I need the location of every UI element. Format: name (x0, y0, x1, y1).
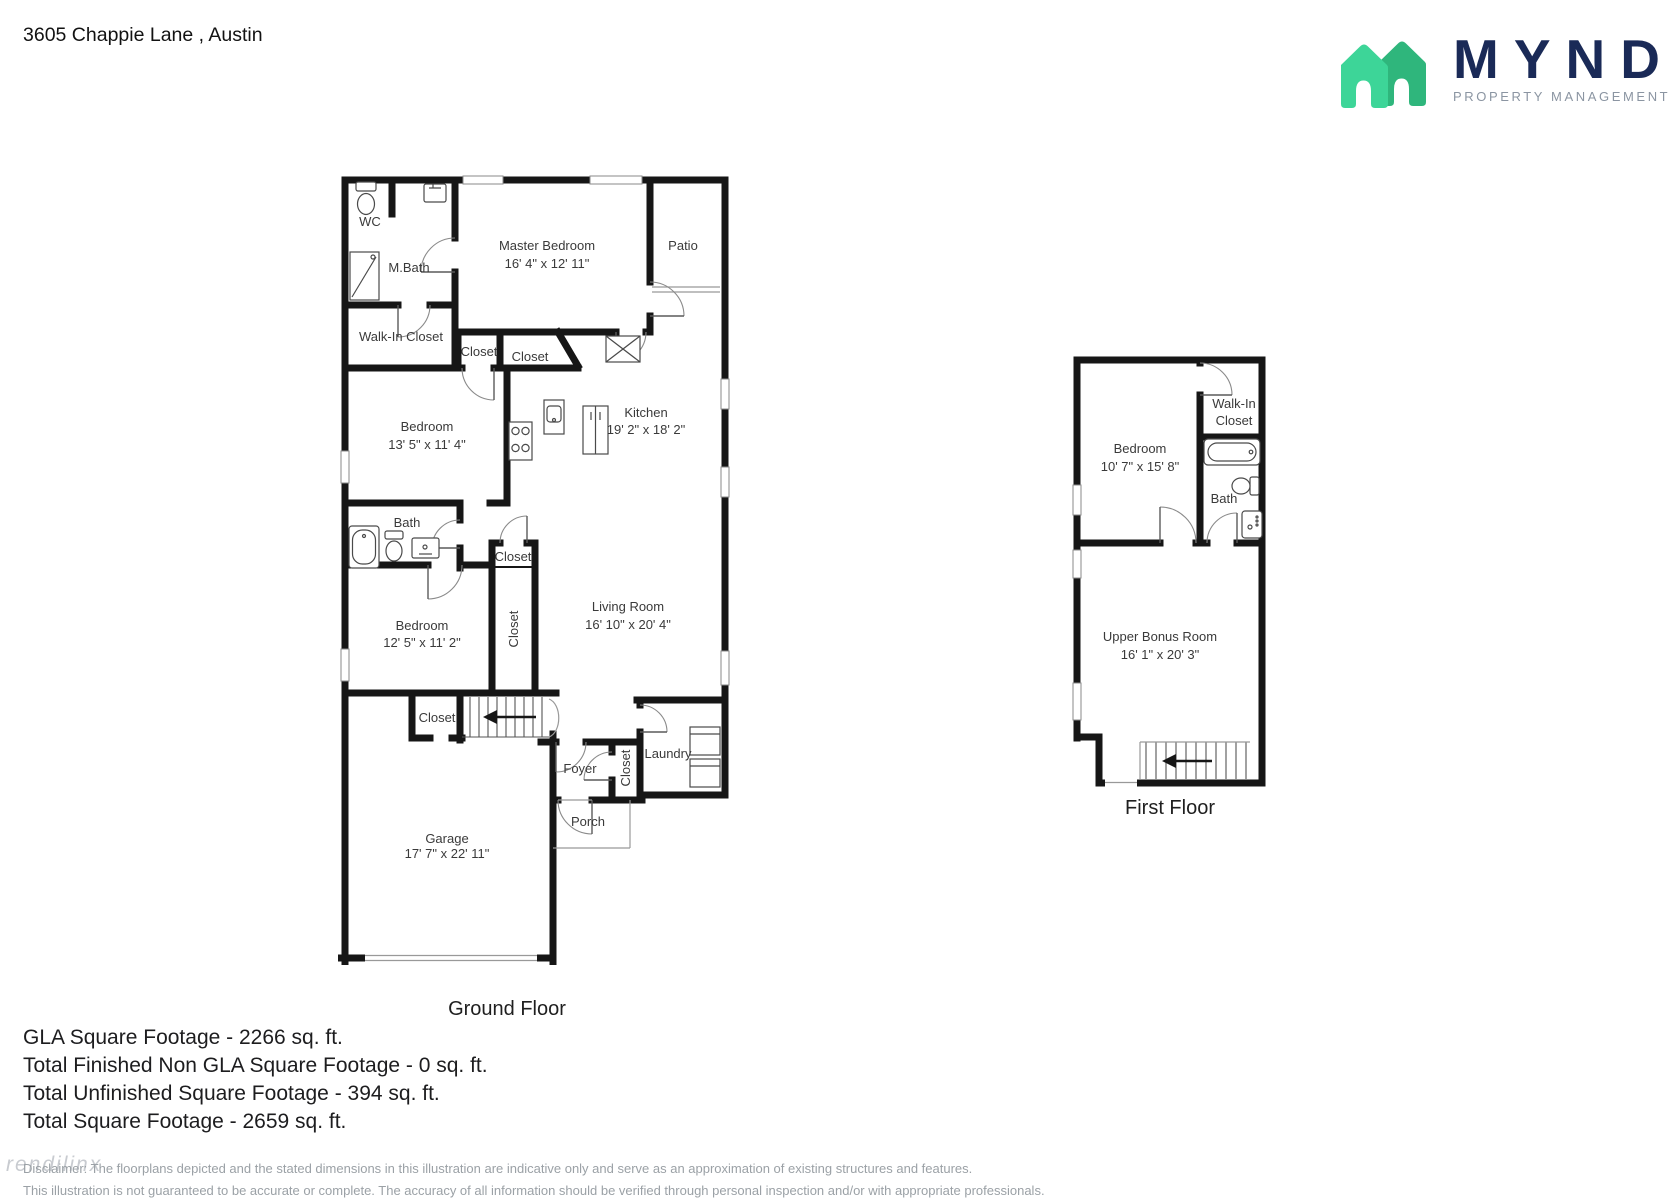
summary-line-gla: GLA Square Footage - 2266 sq. ft. (23, 1024, 488, 1052)
first-floor-title: First Floor (1125, 797, 1215, 819)
window (590, 176, 642, 184)
room-label-closet: Closet (506, 610, 521, 647)
patio-slider-door (652, 287, 720, 292)
disclaimer-line-1: Disclaimer: The floorplans depicted and … (23, 1161, 972, 1176)
room-dims-upper-bonus-room: 16' 1" x 20' 3" (1121, 647, 1200, 662)
room-label-kitchen: Kitchen (624, 405, 667, 420)
room-dims-kitchen: 19' 2" x 18' 2" (607, 422, 686, 437)
fireplace-icon (606, 336, 640, 362)
window (463, 176, 503, 184)
room-label-laundry: Laundry (645, 746, 692, 761)
window (721, 467, 729, 497)
room-label-closet: Closet (512, 349, 549, 364)
door-arc (1160, 507, 1196, 543)
room-dims-bedroom: 13' 5" x 11' 4" (388, 437, 466, 452)
room-label-garage: Garage (425, 831, 468, 846)
floorplan-canvas: WC M.Bath Master Bedroom 16' 4" x 12' 11… (0, 0, 1680, 1188)
room-label-living-room: Living Room (592, 599, 664, 614)
room-label-mbath: M.Bath (388, 260, 429, 275)
door-arc (640, 705, 667, 732)
bathtub-icon (349, 526, 379, 568)
bathtub-icon (1204, 439, 1260, 465)
window (1073, 550, 1081, 578)
summary-line-non-gla: Total Finished Non GLA Square Footage - … (23, 1052, 488, 1080)
summary-line-unfinished: Total Unfinished Square Footage - 394 sq… (23, 1080, 488, 1108)
sink-icon (412, 538, 439, 558)
door-arc (1207, 513, 1237, 543)
sink-icon (424, 184, 446, 202)
stairs-icon (462, 697, 559, 737)
room-label-patio: Patio (668, 238, 698, 253)
summary-line-total: Total Square Footage - 2659 sq. ft. (23, 1108, 488, 1136)
room-label-walk-in-closet: Walk-In (1212, 396, 1256, 411)
door-arc (500, 516, 527, 543)
door-arc (1200, 363, 1232, 395)
first-floor-fixtures (1204, 439, 1262, 538)
ground-floor-plan: WC M.Bath Master Bedroom 16' 4" x 12' 11… (341, 176, 729, 1020)
room-dims-master-bedroom: 16' 4" x 12' 11" (505, 256, 590, 271)
room-dims-living-room: 16' 10" x 20' 4" (585, 617, 671, 632)
square-footage-summary: GLA Square Footage - 2266 sq. ft. Total … (23, 1024, 488, 1136)
shower-icon (350, 252, 379, 300)
room-label-bedroom: Bedroom (1114, 441, 1167, 456)
room-label-porch: Porch (571, 814, 605, 829)
window (721, 651, 729, 685)
room-dims-garage: 17' 7" x 22' 11" (405, 846, 490, 861)
window (341, 649, 349, 681)
stairs-icon (1140, 742, 1250, 779)
stove-icon (509, 422, 532, 460)
threshold (1105, 779, 1137, 787)
room-label-bath: Bath (394, 515, 421, 530)
window (1073, 485, 1081, 515)
room-label-upper-bonus-room: Upper Bonus Room (1103, 629, 1217, 644)
room-label-bedroom: Bedroom (401, 419, 454, 434)
sink-icon (1242, 511, 1262, 538)
door-arc (462, 368, 494, 400)
washer-dryer-icon (690, 727, 720, 787)
ground-floor-title: Ground Floor (448, 998, 566, 1020)
window (721, 379, 729, 409)
room-label-closet: Closet (618, 749, 633, 786)
room-label-closet: Closet (495, 549, 532, 564)
room-label-bedroom: Bedroom (396, 618, 449, 633)
room-dims-bedroom: 10' 7" x 15' 8" (1101, 459, 1180, 474)
disclaimer-line-2: This illustration is not guaranteed to b… (23, 1183, 1045, 1198)
toilet-icon (356, 182, 376, 215)
first-floor-plan: Bedroom 10' 7" x 15' 8" Walk-In Closet B… (1073, 360, 1262, 819)
toilet-icon (385, 531, 403, 561)
garage-door (365, 954, 537, 962)
window (341, 451, 349, 483)
room-label-closet: Closet (419, 710, 456, 725)
room-label-walk-in-closet: Walk-In Closet (359, 329, 443, 344)
room-dims-bedroom: 12' 5" x 11' 2" (383, 635, 461, 650)
ground-floor-walls (342, 180, 726, 962)
refrigerator-icon (583, 406, 608, 454)
room-label-walk-in-closet: Closet (1216, 413, 1253, 428)
room-label-wc: WC (359, 214, 381, 229)
room-label-master-bedroom: Master Bedroom (499, 238, 595, 253)
window (1073, 683, 1081, 720)
room-label-foyer: Foyer (563, 761, 597, 776)
room-label-closet: Closet (461, 344, 498, 359)
room-label-bath: Bath (1211, 491, 1238, 506)
kitchen-island-icon (544, 400, 564, 434)
